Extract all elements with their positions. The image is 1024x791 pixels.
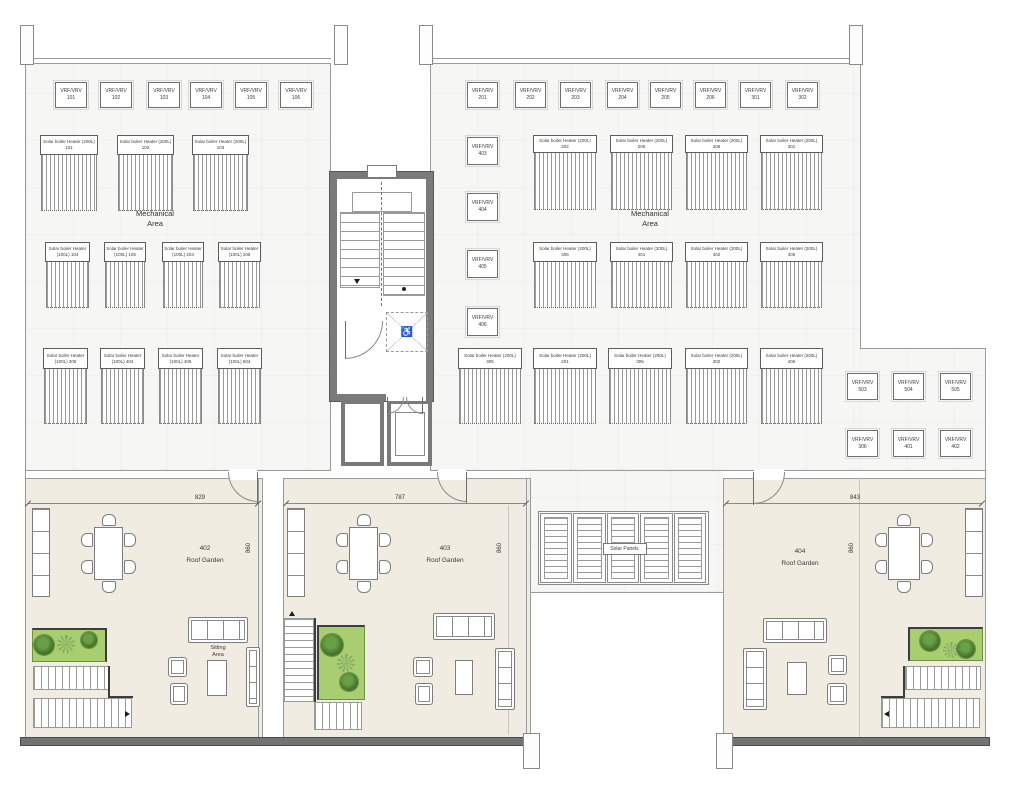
vrf-unit-301: VRF/VRV301 — [740, 82, 771, 108]
stair-wall — [108, 696, 133, 698]
stair-flight-left — [340, 212, 380, 288]
heater-collector — [101, 369, 144, 424]
vrf-unit-number: 405 — [478, 264, 486, 271]
heater-number: 103 — [217, 145, 225, 151]
heater-number: 202 — [561, 144, 569, 150]
wall-line — [425, 63, 861, 64]
vrf-unit-401: VRF/VRV401 — [893, 430, 924, 457]
wall-line — [430, 470, 986, 471]
heater-label: Solar boiler Heater (200L)401 — [610, 242, 673, 262]
vrf-unit-505: VRF/VRV505 — [940, 373, 971, 400]
heater-collector — [163, 262, 203, 308]
heater-label: Solar boiler Heater (200L)102 — [117, 135, 174, 155]
solar-boiler-heater-103: Solar boiler Heater (200L)103 — [192, 135, 249, 211]
dining-chair — [102, 514, 116, 526]
garden-bench — [32, 508, 50, 597]
vrf-unit-number: 103 — [160, 95, 168, 102]
heater-label: Solar boiler Heater(100L) 404 — [100, 348, 145, 369]
heater-label: Solar boiler Heater (200L)406 — [760, 348, 823, 369]
solar-panel-slats — [644, 517, 668, 579]
vrf-unit-type: VRF/VRV — [240, 88, 262, 95]
parapet-wall — [20, 737, 536, 746]
heater-number: 402 — [713, 252, 721, 258]
vrf-unit-number: 503 — [858, 387, 866, 394]
solar-boiler-heater-100L404: Solar boiler Heater(100L) 404 — [100, 348, 145, 424]
vrf-unit-type: VRF/VRV — [105, 88, 127, 95]
solar-boiler-heater-306: Solar boiler Heater (200L)306 — [608, 348, 672, 424]
heater-collector — [761, 262, 822, 308]
dimension-value: 787 — [395, 495, 405, 501]
dimension-value: 843 — [850, 495, 860, 501]
vrf-unit-number: 206 — [706, 95, 714, 102]
vrf-unit-402: VRF/VRV402 — [940, 430, 971, 457]
vrf-unit-405: VRF/VRV405 — [467, 250, 498, 278]
vrf-unit-type: VRF/VRV — [195, 88, 217, 95]
solar-boiler-heater-205: Solar boiler Heater (200L)205 — [610, 135, 673, 210]
heater-number: 301 — [788, 144, 796, 150]
heater-label: Solar boiler Heater (200L)402 — [685, 242, 748, 262]
wall-line — [530, 478, 531, 738]
heater-collector — [686, 262, 747, 308]
heater-label: Solar boiler Heater(100L) 305 — [43, 348, 88, 369]
vrf-unit-number: 202 — [526, 95, 534, 102]
heater-number: 302 — [713, 359, 721, 365]
vrf-unit-number: 403 — [478, 151, 486, 158]
pilaster-column — [334, 25, 348, 65]
heater-collector — [534, 262, 596, 308]
vrf-unit-type: VRF/VRV — [700, 88, 722, 95]
vrf-unit-type: VRF/VRV — [60, 88, 82, 95]
solar-panel-slats — [544, 517, 568, 579]
armchair-seat — [830, 686, 844, 702]
elevator-car — [395, 412, 425, 456]
heater-number: (100L) 205 — [229, 252, 251, 258]
furniture-arm — [828, 655, 847, 675]
sofa-seats — [249, 650, 257, 704]
heater-collector — [44, 369, 87, 424]
solar-boiler-heater-100L105: Solar boiler Heater(100L) 105 — [104, 242, 146, 308]
dimension-line — [726, 503, 982, 504]
vrf-unit-number: 204 — [618, 95, 626, 102]
wall-line — [723, 478, 724, 738]
dining-chair — [379, 533, 391, 547]
dining-chair — [81, 533, 93, 547]
parapet-wall — [717, 737, 990, 746]
heater-number: (100L) 404 — [112, 359, 134, 365]
vrf-unit-number: 505 — [951, 387, 959, 394]
armchair-seat — [416, 660, 430, 674]
wall-line — [283, 478, 530, 479]
vrf-unit-number: 101 — [67, 95, 75, 102]
core-double-door-leaf-left — [387, 397, 388, 414]
armchair-seat — [173, 686, 185, 702]
vrf-unit-103: VRF/VRV103 — [148, 82, 180, 108]
wall-line — [530, 592, 723, 593]
wall-line — [859, 478, 860, 737]
tree-dense — [81, 632, 97, 648]
heater-collector — [218, 369, 261, 424]
heater-number: 305 — [486, 359, 494, 365]
heater-collector — [761, 369, 822, 424]
furniture-ctable — [207, 660, 227, 696]
sofa-seats — [498, 651, 512, 707]
stair-run — [905, 666, 981, 690]
dining-chair — [357, 514, 371, 526]
vrf-unit-type: VRF/VRV — [520, 88, 542, 95]
vrf-unit-203: VRF/VRV203 — [560, 82, 591, 108]
stair-landing — [352, 192, 412, 212]
dimension-value-side: 860 — [497, 543, 503, 553]
dining-table — [94, 527, 123, 580]
heater-number: 201 — [561, 359, 569, 365]
pier-stub — [523, 733, 540, 769]
vrf-unit-number: 203 — [571, 95, 579, 102]
heater-label: Solar boiler Heater(100L) 104 — [45, 242, 90, 262]
solar-panel-slats — [678, 517, 702, 579]
dining-chair — [875, 533, 887, 547]
heater-number: 102 — [142, 145, 150, 151]
vrf-unit-104: VRF/VRV104 — [190, 82, 222, 108]
vrf-unit-type: VRF/VRV — [945, 437, 967, 444]
pilaster-column — [849, 25, 863, 65]
heater-number: 401 — [638, 252, 646, 258]
solar-boiler-heater-202: Solar boiler Heater (200L)202 — [533, 135, 597, 210]
heater-collector — [761, 153, 822, 210]
vrf-unit-504: VRF/VRV504 — [893, 373, 924, 400]
heater-number: 306 — [636, 359, 644, 365]
heater-collector — [193, 155, 248, 211]
dimension-value-side: 860 — [246, 543, 252, 553]
dining-chair — [124, 533, 136, 547]
heater-label: Solar boiler Heater (200L)306 — [608, 348, 672, 369]
vrf-unit-type: VRF/VRV — [898, 380, 920, 387]
heater-number: 405 — [788, 252, 796, 258]
tree-sparse — [57, 635, 75, 653]
dining-table — [349, 527, 378, 580]
heater-collector — [686, 369, 747, 424]
tree-dense — [920, 631, 940, 651]
furniture-sofa-v — [743, 648, 767, 710]
heater-collector — [159, 369, 202, 424]
vrf-unit-106: VRF/VRV106 — [280, 82, 312, 108]
stair-wall — [314, 618, 316, 702]
furniture-sofa-v — [495, 648, 515, 710]
stair-wall — [881, 696, 905, 698]
vrf-unit-206: VRF/VRV206 — [695, 82, 726, 108]
heater-collector — [534, 153, 596, 210]
tree-sparse — [337, 654, 355, 672]
vrf-unit-number: 402 — [951, 444, 959, 451]
heater-label: Solar boiler Heater (200L)305 — [458, 348, 522, 369]
heater-label: Solar boiler Heater(100L) 504 — [217, 348, 262, 369]
heater-collector — [105, 262, 145, 308]
solar-boiler-heater-201: Solar boiler Heater (200L)201 — [533, 348, 597, 424]
stair-run — [284, 618, 314, 702]
solar-boiler-heater-405: Solar boiler Heater (200L)405 — [760, 242, 823, 308]
solar-boiler-heater-100L204: Solar boiler Heater(100L) 204 — [162, 242, 204, 308]
vrf-unit-204: VRF/VRV204 — [607, 82, 638, 108]
wall-line — [330, 63, 331, 173]
heater-number: 101 — [65, 145, 73, 151]
sofa-seats — [746, 651, 764, 707]
solar-boiler-heater-402: Solar boiler Heater (200L)402 — [685, 242, 748, 308]
vrf-unit-type: VRF/VRV — [472, 144, 494, 151]
vrf-unit-type: VRF/VRV — [472, 257, 494, 264]
wall-line — [26, 470, 331, 471]
furniture-ctable — [455, 660, 473, 695]
pier-stub — [716, 733, 733, 769]
garden-bench — [965, 508, 983, 597]
heater-collector — [609, 369, 671, 424]
sofa-seats — [766, 621, 824, 640]
furniture-arm — [170, 683, 188, 705]
tree-dense — [957, 640, 975, 658]
heater-label: Solar boiler Heater (200L)306 — [533, 242, 597, 262]
armchair-seat — [171, 660, 184, 674]
vrf-unit-number: 106 — [292, 95, 300, 102]
dining-chair — [921, 560, 933, 574]
heater-label: Solar boiler Heater(100L) 105 — [104, 242, 146, 262]
vrf-unit-type: VRF/VRV — [285, 88, 307, 95]
core-double-door-leaf-right — [422, 397, 423, 414]
heater-label: Solar boiler Heater (200L)103 — [192, 135, 249, 155]
garden-door-leaf — [753, 472, 754, 505]
vrf-unit-type: VRF/VRV — [898, 437, 920, 444]
furniture-arm — [415, 683, 433, 705]
heater-collector — [46, 262, 89, 308]
pilaster-column — [419, 25, 433, 65]
dimension-line — [28, 503, 258, 504]
solar-boiler-heater-100L104: Solar boiler Heater(100L) 104 — [45, 242, 90, 308]
vrf-unit-type: VRF/VRV — [945, 380, 967, 387]
heater-collector — [611, 262, 672, 308]
heater-collector — [41, 155, 97, 211]
vrf-unit-type: VRF/VRV — [655, 88, 677, 95]
dining-table — [888, 527, 920, 580]
solar-boiler-heater-401: Solar boiler Heater (200L)401 — [610, 242, 673, 308]
vrf-unit-number: 102 — [112, 95, 120, 102]
heater-number: 205 — [638, 144, 646, 150]
solar-panels-label: Solar Panels — [603, 543, 647, 555]
wall-line — [25, 58, 26, 738]
heater-number: 406 — [788, 359, 796, 365]
vrf-unit-503: VRF/VRV503 — [847, 373, 878, 400]
vrf-unit-type: VRF/VRV — [472, 88, 494, 95]
heater-collector — [686, 153, 747, 210]
heater-label: Solar boiler Heater (200L)206 — [685, 135, 748, 153]
solar-boiler-heater-101: Solar boiler Heater (200L)101 — [40, 135, 98, 211]
vrf-unit-number: 504 — [904, 387, 912, 394]
solar-boiler-heater-301: Solar boiler Heater (200L)301 — [760, 135, 823, 210]
solar-boiler-heater-102: Solar boiler Heater (200L)102 — [117, 135, 174, 211]
vrf-unit-number: 406 — [478, 322, 486, 329]
heater-label: Solar boiler Heater(100L) 205 — [218, 242, 261, 262]
heater-number: (100L) 104 — [57, 252, 79, 258]
solar-boiler-heater-100L504: Solar boiler Heater(100L) 504 — [217, 348, 262, 424]
dining-chair — [336, 560, 348, 574]
heater-label: Solar boiler Heater(100L) 204 — [162, 242, 204, 262]
vrf-unit-type: VRF/VRV — [612, 88, 634, 95]
stair-wall — [903, 666, 905, 698]
stair-start-dot — [402, 287, 406, 291]
heater-collector — [459, 369, 521, 424]
stair-run — [33, 698, 132, 728]
heater-label: Solar boiler Heater (200L)405 — [760, 242, 823, 262]
vrf-unit-number: 201 — [478, 95, 486, 102]
wall-line — [330, 399, 331, 471]
furniture-sofa-h — [763, 618, 827, 643]
sofa-seats — [436, 616, 492, 637]
solar-boiler-heater-306: Solar boiler Heater (200L)306 — [533, 242, 597, 308]
stair-direction-marker — [354, 279, 360, 284]
pilaster-column — [20, 25, 34, 65]
solar-boiler-heater-206: Solar boiler Heater (200L)206 — [685, 135, 748, 210]
tree-dense — [340, 673, 358, 691]
stair-run — [314, 702, 362, 730]
wall-line — [26, 63, 331, 64]
tree-dense — [321, 634, 343, 656]
heater-label: Solar boiler Heater (200L)202 — [533, 135, 597, 153]
furniture-sofa-h — [433, 613, 495, 640]
vrf-unit-number: 306 — [858, 444, 866, 451]
core-subroom-left — [341, 400, 384, 466]
dining-chair — [336, 533, 348, 547]
dimension-line — [286, 503, 526, 504]
heater-collector — [118, 155, 173, 211]
mechanical-area-label-2: Mechanical Area — [631, 209, 669, 229]
heater-label: Solar boiler Heater(100L) 405 — [158, 348, 203, 369]
vrf-unit-201: VRF/VRV201 — [467, 82, 498, 108]
vrf-unit-type: VRF/VRV — [745, 88, 767, 95]
vrf-unit-number: 401 — [904, 444, 912, 451]
dining-chair — [897, 514, 911, 526]
stair-wall — [108, 666, 110, 698]
vrf-unit-101: VRF/VRV101 — [55, 82, 87, 108]
vrf-unit-205: VRF/VRV205 — [650, 82, 681, 108]
heater-label: Solar boiler Heater (200L)205 — [610, 135, 673, 153]
solar-boiler-heater-100L405: Solar boiler Heater(100L) 405 — [158, 348, 203, 424]
vrf-unit-306: VRF/VRV306 — [847, 430, 878, 457]
garden-door-leaf — [257, 472, 258, 503]
furniture-sofa-h — [188, 617, 248, 643]
dining-chair — [102, 581, 116, 593]
tree-dense — [34, 635, 54, 655]
furniture-arm — [168, 657, 187, 677]
heater-label: Solar boiler Heater (200L)301 — [760, 135, 823, 153]
wall-line — [860, 348, 986, 349]
solar-panel — [573, 513, 605, 583]
stair-arrow — [884, 711, 889, 717]
wall-line — [425, 58, 861, 59]
wall-line — [526, 478, 527, 738]
solar-boiler-heater-305: Solar boiler Heater (200L)305 — [458, 348, 522, 424]
wall-line — [860, 63, 861, 349]
stair-arrow — [125, 711, 130, 717]
vrf-unit-number: 301 — [751, 95, 759, 102]
vrf-unit-406: VRF/VRV406 — [467, 308, 498, 336]
dimension-value-side: 860 — [849, 543, 855, 553]
vrf-unit-type: VRF/VRV — [792, 88, 814, 95]
furniture-arm — [413, 657, 433, 677]
heater-label: Solar boiler Heater (200L)201 — [533, 348, 597, 369]
dining-chair — [357, 581, 371, 593]
vrf-unit-type: VRF/VRV — [852, 380, 874, 387]
wall-line — [430, 63, 431, 173]
heater-number: 206 — [713, 144, 721, 150]
heater-number: 306 — [561, 252, 569, 258]
vrf-unit-102: VRF/VRV102 — [100, 82, 132, 108]
core-door-leaf — [345, 321, 346, 359]
solar-panel — [674, 513, 706, 583]
solar-panel — [540, 513, 572, 583]
vrf-unit-number: 205 — [661, 95, 669, 102]
vrf-unit-105: VRF/VRV105 — [235, 82, 267, 108]
heater-label: Solar boiler Heater (200L)302 — [685, 348, 748, 369]
vrf-unit-type: VRF/VRV — [472, 315, 494, 322]
heater-number: (100L) 405 — [170, 359, 192, 365]
dining-chair — [875, 560, 887, 574]
solar-panel-slats — [577, 517, 601, 579]
dimension-value: 829 — [195, 495, 205, 501]
solar-boiler-heater-100L205: Solar boiler Heater(100L) 205 — [218, 242, 261, 308]
vrf-unit-302: VRF/VRV302 — [787, 82, 818, 108]
solar-boiler-heater-406: Solar boiler Heater (200L)406 — [760, 348, 823, 424]
accessible-elevator: ♿ — [386, 312, 428, 352]
dining-chair — [921, 533, 933, 547]
vrf-unit-number: 104 — [202, 95, 210, 102]
vrf-unit-number: 302 — [798, 95, 806, 102]
dining-chair — [124, 560, 136, 574]
vrf-unit-type: VRF/VRV — [565, 88, 587, 95]
furniture-ctable — [787, 662, 807, 695]
vrf-unit-type: VRF/VRV — [153, 88, 175, 95]
wheelchair-icon: ♿ — [401, 327, 413, 338]
garden-label-403: 403 Roof Garden — [426, 543, 463, 566]
sofa-seats — [191, 620, 245, 640]
sitting-area-label: Sitting Area — [210, 645, 225, 659]
solar-boiler-heater-302: Solar boiler Heater (200L)302 — [685, 348, 748, 424]
roof-vent — [367, 165, 397, 178]
wall-line — [25, 478, 262, 479]
stair-arrow — [289, 611, 295, 616]
dining-chair — [81, 560, 93, 574]
dining-chair — [379, 560, 391, 574]
armchair-seat — [831, 658, 844, 672]
dining-chair — [897, 581, 911, 593]
wall-line — [262, 478, 263, 738]
garden-label-402: 402 Roof Garden — [186, 543, 223, 566]
heater-label: Solar boiler Heater (200L)101 — [40, 135, 98, 155]
vrf-unit-number: 105 — [247, 95, 255, 102]
heater-collector — [534, 369, 596, 424]
solar-boiler-heater-100L305: Solar boiler Heater(100L) 305 — [43, 348, 88, 424]
vrf-unit-404: VRF/VRV404 — [467, 193, 498, 221]
vrf-unit-202: VRF/VRV202 — [515, 82, 546, 108]
stair-run — [881, 698, 980, 728]
stair-center-divider — [381, 182, 382, 306]
heater-collector — [219, 262, 260, 308]
heater-number: (100L) 504 — [229, 359, 251, 365]
stair-run — [33, 666, 109, 690]
heater-number: (100L) 204 — [172, 252, 194, 258]
mechanical-area-label-1: Mechanical Area — [136, 209, 174, 229]
vrf-unit-403: VRF/VRV403 — [467, 137, 498, 165]
heater-collector — [611, 153, 672, 210]
vrf-unit-type: VRF/VRV — [472, 200, 494, 207]
garden-label-404: 404 Roof Garden — [781, 546, 818, 569]
wall-line — [985, 348, 986, 738]
stair-flight-right — [383, 212, 425, 296]
